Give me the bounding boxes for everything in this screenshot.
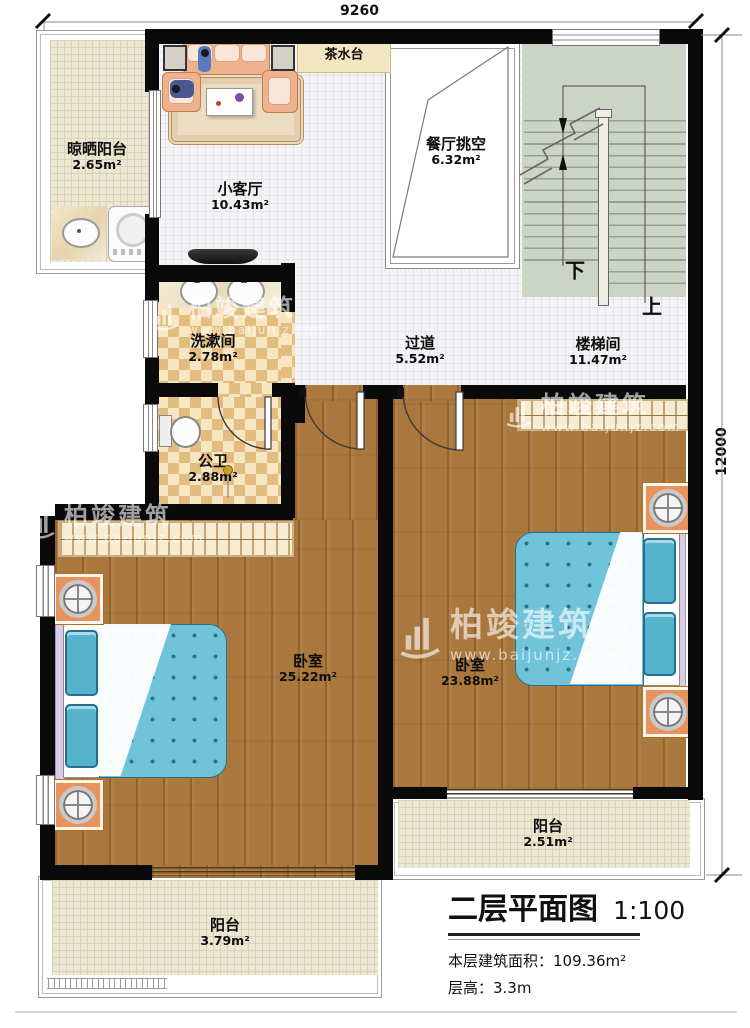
dimension-top: 9260 — [340, 3, 379, 19]
nightstand — [643, 687, 693, 737]
wall — [355, 865, 393, 880]
wall — [281, 263, 295, 312]
window — [552, 29, 660, 46]
glass-door — [152, 867, 355, 876]
door-threshold-right — [403, 385, 461, 401]
wall — [40, 516, 55, 565]
stair-down-label: 下 — [565, 260, 585, 283]
door-threshold-left — [305, 385, 363, 401]
wall — [150, 29, 552, 44]
room-label-corridor: 过道5.52m² — [395, 335, 444, 367]
glass-door — [447, 789, 633, 798]
coffee-table — [206, 88, 253, 116]
stair-flight-left — [524, 120, 600, 261]
room-label-tea-station: 茶水台 — [324, 49, 363, 64]
stair-railing-cap — [595, 109, 612, 118]
toilet-bowl — [170, 416, 201, 448]
stair-flight-right — [607, 120, 686, 294]
window — [143, 300, 158, 358]
stair-up-label: 上 — [642, 296, 662, 319]
stair-railing — [598, 112, 609, 306]
sofa-top — [183, 40, 270, 75]
washroom-entry-floor — [281, 312, 295, 383]
wall — [55, 504, 293, 520]
wall — [40, 615, 55, 775]
speaker-left — [163, 45, 187, 71]
wall — [145, 214, 159, 302]
bed-right — [513, 530, 686, 686]
wall — [40, 865, 152, 880]
dimension-right: 12000 — [714, 436, 730, 476]
armchair-right — [262, 70, 298, 113]
bed-left — [55, 622, 227, 778]
wall — [157, 383, 218, 397]
wall — [293, 385, 305, 423]
console-bowl — [188, 249, 258, 264]
room-label-washroom: 洗漱间2.78m² — [188, 333, 237, 365]
room-label-balcony-left: 阳台3.79m² — [200, 917, 249, 949]
person-head — [201, 49, 209, 57]
laundry-sink-drain — [77, 229, 81, 233]
plan-scale: 1:100 — [613, 896, 685, 925]
laundry-sink — [62, 218, 100, 248]
nightstand — [53, 780, 103, 830]
floor-area-text: 本层建筑面积：109.36m² — [448, 950, 728, 971]
window — [36, 565, 55, 617]
nightstand — [53, 574, 103, 624]
bedroom-left-nook-floor — [295, 399, 378, 520]
floor-height-text: 层高：3.3m — [448, 977, 728, 998]
title-underline — [448, 933, 640, 936]
toilet-door-threshold — [218, 383, 272, 397]
wardrobe-right — [517, 399, 690, 431]
room-label-stairwell: 楼梯间11.47m² — [569, 336, 627, 368]
room-label-drying-balcony: 晾晒阳台2.65m² — [67, 141, 127, 173]
room-label-dining-void: 餐厅挑空6.32m² — [426, 136, 486, 168]
balcony-railing — [47, 978, 167, 989]
wall — [145, 29, 159, 92]
room-label-balcony-right: 阳台2.51m² — [523, 818, 572, 850]
title-block: 二层平面图 1:100 本层建筑面积：109.36m² 层高：3.3m — [448, 884, 728, 998]
wall — [633, 787, 703, 799]
wall — [393, 787, 447, 799]
speaker-right — [271, 45, 295, 71]
room-label-toilet: 公卫2.88m² — [188, 453, 237, 485]
room-label-bedroom-left: 卧室25.22m² — [279, 653, 337, 685]
wall — [688, 29, 703, 800]
window — [36, 775, 55, 825]
room-label-living: 小客厅10.43m² — [211, 181, 269, 213]
wardrobe-left — [58, 521, 294, 557]
balcony-slider — [149, 90, 161, 218]
title-underline-2 — [448, 939, 640, 940]
room-label-bedroom-right: 卧室23.88m² — [441, 657, 499, 689]
window — [143, 404, 158, 452]
plan-title: 二层平面图 — [448, 892, 598, 927]
wall — [145, 265, 293, 282]
nightstand — [643, 483, 693, 533]
wall — [378, 399, 393, 880]
wall — [363, 385, 403, 399]
wall — [461, 385, 686, 399]
person-head-2 — [172, 85, 180, 93]
floor-plan: 9260 12000 晾晒阳台2.65m² 小客厅10.43m² 茶水台 餐厅挑… — [0, 0, 750, 1028]
